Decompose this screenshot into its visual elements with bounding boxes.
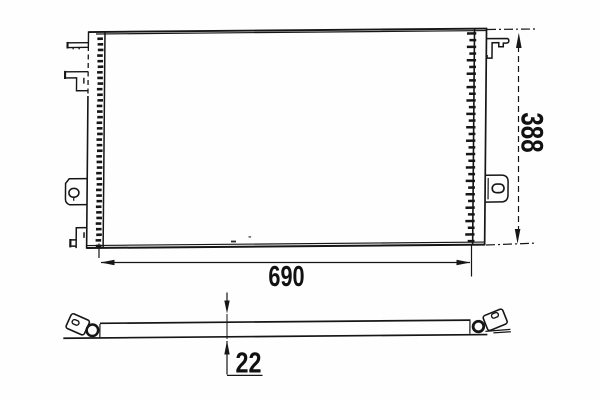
svg-text:22: 22 xyxy=(236,346,262,379)
svg-text:388: 388 xyxy=(515,112,550,152)
svg-text:690: 690 xyxy=(268,261,304,293)
